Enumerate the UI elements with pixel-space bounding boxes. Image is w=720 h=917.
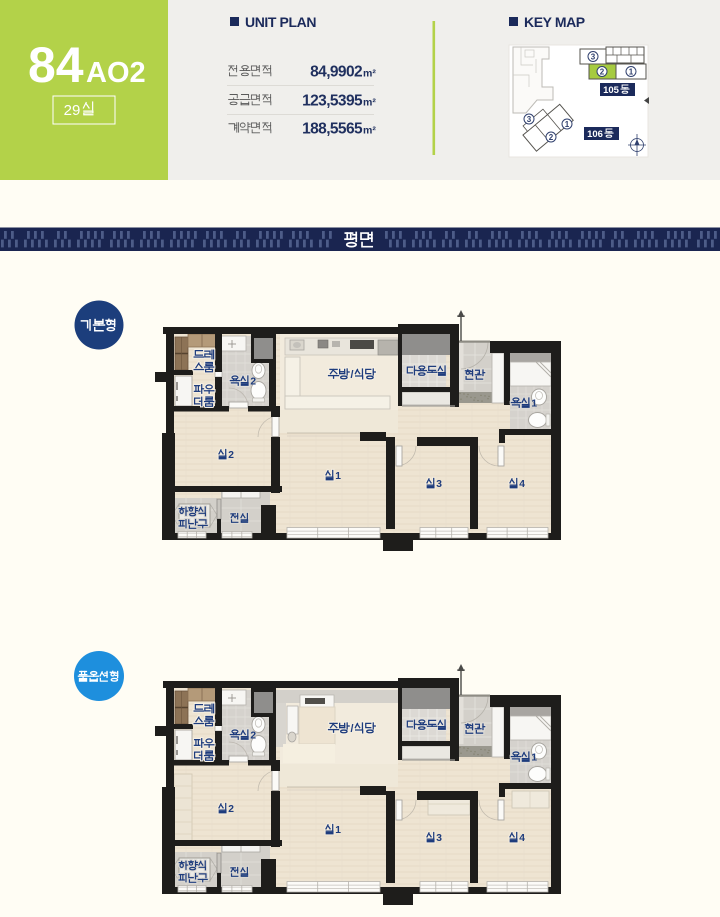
svg-text:1: 1 <box>531 753 537 764</box>
svg-text:KEY MAP: KEY MAP <box>524 14 585 30</box>
svg-text:2: 2 <box>228 450 234 461</box>
svg-text:m²: m² <box>363 68 376 80</box>
svg-text:123,5395: 123,5395 <box>302 93 363 110</box>
svg-text:1: 1 <box>335 825 341 836</box>
svg-text:m²: m² <box>363 97 376 109</box>
svg-text:2: 2 <box>549 133 554 142</box>
svg-text:188,5565: 188,5565 <box>302 121 363 138</box>
svg-text:106: 106 <box>587 129 603 140</box>
svg-text:1: 1 <box>565 120 570 129</box>
svg-text:2: 2 <box>250 731 256 742</box>
svg-text:/: / <box>351 723 354 735</box>
svg-text:4: 4 <box>519 479 525 490</box>
svg-text:/: / <box>351 369 354 381</box>
svg-text:2: 2 <box>600 68 605 77</box>
svg-text:3: 3 <box>591 53 596 62</box>
svg-text:2: 2 <box>228 804 234 815</box>
svg-text:m²: m² <box>363 125 376 137</box>
svg-text:3: 3 <box>436 833 442 844</box>
svg-text:3: 3 <box>527 115 532 124</box>
svg-text:1: 1 <box>335 471 341 482</box>
svg-text:3: 3 <box>436 479 442 490</box>
svg-text:84: 84 <box>28 37 84 93</box>
svg-text:29: 29 <box>64 102 81 119</box>
svg-text:105: 105 <box>603 85 620 96</box>
svg-text:UNIT PLAN: UNIT PLAN <box>245 14 316 30</box>
svg-text:1: 1 <box>531 399 537 410</box>
svg-text:1: 1 <box>629 68 634 77</box>
svg-text:84,9902: 84,9902 <box>310 64 362 81</box>
svg-text:AO2: AO2 <box>86 57 146 89</box>
svg-text:4: 4 <box>519 833 525 844</box>
svg-text:2: 2 <box>250 377 256 388</box>
